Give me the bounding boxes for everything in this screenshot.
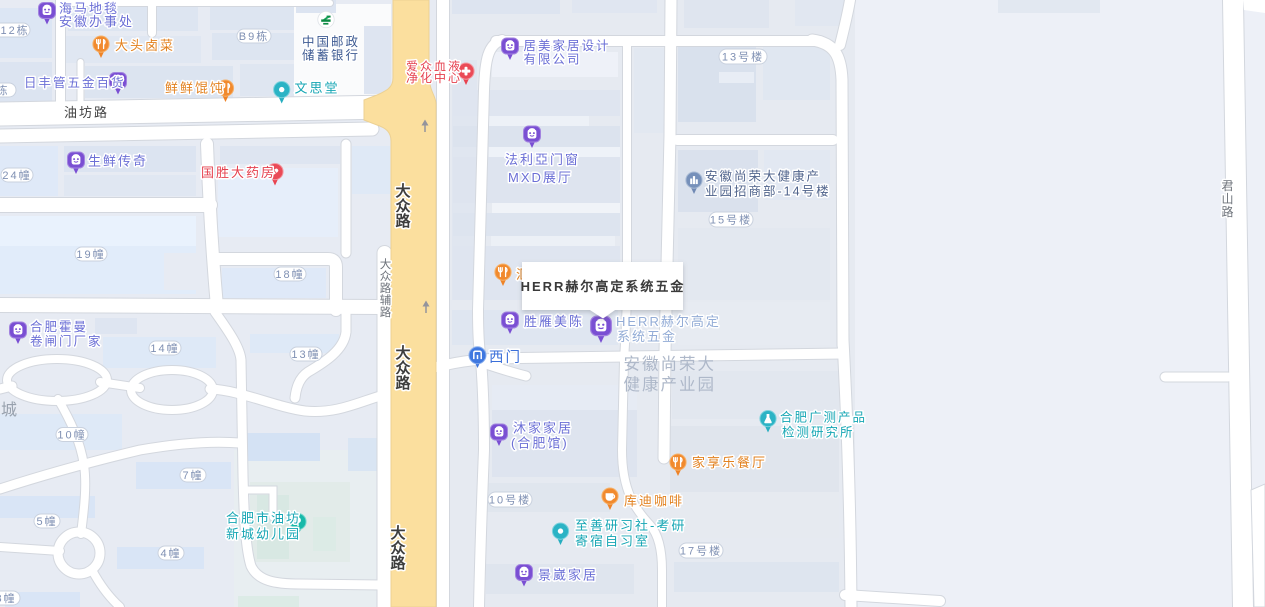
svg-text:业园招商部-14号楼: 业园招商部-14号楼 (705, 184, 831, 199)
svg-text:路: 路 (380, 281, 394, 295)
svg-text:储蓄银行: 储蓄银行 (302, 48, 360, 63)
svg-text:17号楼: 17号楼 (680, 544, 722, 558)
svg-text:大: 大 (380, 257, 394, 271)
svg-text:合肥霍曼: 合肥霍曼 (30, 319, 88, 334)
svg-text:山: 山 (1221, 192, 1235, 206)
svg-text:油坊路: 油坊路 (64, 105, 109, 120)
svg-text:系统五金: 系统五金 (617, 329, 677, 344)
svg-text:君: 君 (1221, 179, 1235, 193)
svg-text:路: 路 (1221, 204, 1235, 219)
svg-text:景崴家居: 景崴家居 (538, 568, 598, 583)
svg-text:3幢: 3幢 (0, 591, 17, 605)
svg-text:众: 众 (380, 270, 394, 283)
svg-text:有限公司: 有限公司 (524, 53, 582, 67)
svg-text:鲜鲜馄饨: 鲜鲜馄饨 (165, 81, 225, 96)
svg-text:生鲜传奇: 生鲜传奇 (88, 154, 148, 169)
svg-text:沐家家居: 沐家家居 (513, 421, 573, 436)
svg-text:城: 城 (1, 401, 19, 419)
svg-text:HERR赫尔高定系统五金: HERR赫尔高定系统五金 (521, 279, 686, 294)
svg-text:15号楼: 15号楼 (710, 213, 752, 227)
svg-text:健康产业园: 健康产业园 (624, 375, 717, 394)
svg-text:合肥市油坊: 合肥市油坊 (226, 511, 301, 526)
svg-text:寄宿自习室: 寄宿自习室 (575, 534, 650, 549)
svg-text:家享乐餐厅: 家享乐餐厅 (692, 455, 767, 470)
svg-text:胜雁美陈: 胜雁美陈 (524, 314, 584, 329)
svg-text:合肥广测产品: 合肥广测产品 (780, 410, 867, 425)
svg-text:10号楼: 10号楼 (489, 493, 531, 507)
svg-text:路: 路 (395, 212, 412, 230)
svg-text:14幢: 14幢 (150, 341, 179, 355)
svg-text:大头卤菜: 大头卤菜 (115, 38, 175, 53)
svg-text:法利亞门窗: 法利亞门窗 (505, 152, 580, 167)
svg-text:24幢: 24幢 (2, 168, 31, 182)
svg-text:(合肥馆): (合肥馆) (511, 436, 569, 451)
svg-text:19幢: 19幢 (76, 247, 105, 261)
svg-text:4幢: 4幢 (160, 546, 181, 560)
svg-text:库迪咖啡: 库迪咖啡 (624, 494, 684, 509)
svg-text:辅: 辅 (380, 293, 394, 307)
svg-text:5幢: 5幢 (36, 514, 57, 528)
svg-text:栋: 栋 (0, 83, 10, 97)
svg-text:新城幼儿园: 新城幼儿园 (226, 527, 301, 542)
svg-text:居美家居设计: 居美家居设计 (524, 38, 611, 53)
svg-text:10幢: 10幢 (57, 428, 86, 442)
svg-text:安徽尚荣大健康产: 安徽尚荣大健康产 (705, 169, 821, 184)
svg-text:路: 路 (395, 374, 412, 392)
svg-text:18幢: 18幢 (275, 267, 304, 281)
svg-text:路: 路 (390, 554, 407, 572)
svg-text:国胜大药房: 国胜大药房 (201, 165, 276, 180)
svg-text:安徽办事处: 安徽办事处 (59, 14, 134, 29)
svg-text:文思堂: 文思堂 (295, 81, 340, 96)
svg-text:MXD展厅: MXD展厅 (508, 170, 573, 185)
svg-text:日丰管五金百货: 日丰管五金百货 (24, 75, 126, 90)
svg-text:13号楼: 13号楼 (722, 50, 764, 64)
svg-text:西门: 西门 (489, 349, 522, 366)
svg-text:净化中心: 净化中心 (406, 70, 462, 85)
svg-text:HERR赫尔高定: HERR赫尔高定 (616, 314, 721, 329)
svg-text:路: 路 (380, 305, 394, 319)
svg-text:13幢: 13幢 (291, 347, 320, 361)
svg-text:检测研究所: 检测研究所 (782, 425, 855, 440)
svg-text:至善研习社-考研: 至善研习社-考研 (575, 518, 686, 533)
svg-text:B9栋: B9栋 (239, 29, 269, 43)
svg-text:7幢: 7幢 (182, 468, 203, 482)
svg-text:卷闸门厂家: 卷闸门厂家 (30, 334, 103, 349)
svg-text:312栋: 312栋 (0, 23, 30, 37)
svg-text:安徽尚荣大: 安徽尚荣大 (624, 355, 717, 374)
svg-text:中国邮政: 中国邮政 (302, 34, 360, 49)
